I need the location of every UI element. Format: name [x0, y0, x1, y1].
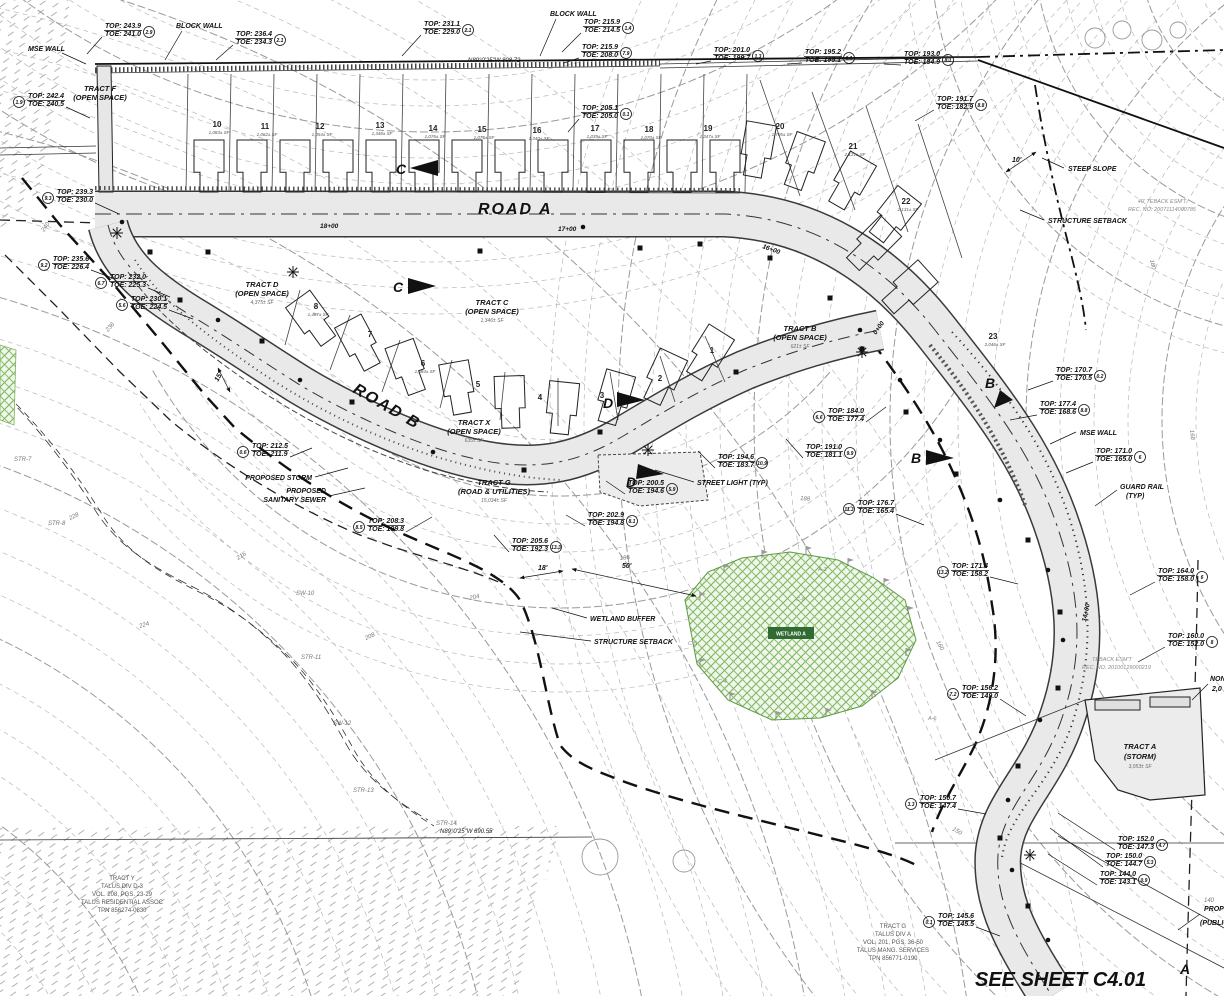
drawing-text: TOE: 214.5: [584, 27, 620, 34]
catch-basin-symbol: [148, 250, 153, 255]
stream-label: STR-8: [48, 521, 66, 527]
wall-label: TOP: 160.0TOE: 152.08: [1138, 633, 1218, 662]
drawing-line: 15': [214, 371, 225, 383]
drawing-text: 0.1: [846, 56, 853, 62]
drawing-line: [696, 61, 711, 64]
ne-corner-boundary: [978, 50, 1224, 57]
stream-line: [8, 398, 428, 820]
drawing-text: 13.3: [551, 545, 561, 551]
drawing-line: [884, 64, 901, 65]
lot-area: 1,487± SF: [308, 312, 329, 317]
catch-basin-symbol: [904, 410, 909, 415]
building-footprint: [538, 140, 568, 192]
street-light-symbol: [294, 273, 297, 276]
drawing-text: TOP: 242.4: [28, 93, 64, 100]
wetland-flag-label: C-5: [688, 641, 698, 647]
lot-area: 1,705± SF: [772, 132, 793, 137]
wall-label: TOP: 191.7TOE: 182.98.8: [915, 96, 987, 121]
adjacent-tract-west-5: TPN 856274-0830: [97, 908, 147, 914]
tract-g-sub: (ROAD & UTILITIES): [458, 487, 531, 496]
drawing-line: [1130, 582, 1155, 595]
lot-number: 12: [316, 122, 325, 131]
drawing-text: TOE: 241.0: [105, 31, 141, 38]
wall-label: TOP: 243.9TOE: 241.02.9: [87, 23, 155, 54]
drawing-text: 1.4: [625, 26, 632, 32]
wall-label: TOP: 231.1TOE: 229.02.1: [402, 21, 474, 56]
building-outline: [194, 140, 224, 192]
lot-number: 3: [600, 391, 605, 400]
lot-line: [444, 74, 446, 192]
lot-area: 2,131± SF: [897, 207, 919, 212]
drawing-text: TOE: 184.9: [904, 59, 940, 66]
tract-d-area: 4,375± SF: [250, 300, 274, 306]
wall-label: TOP: 150.7TOE: 147.43.3: [906, 795, 987, 814]
contour-label: 140: [1204, 898, 1215, 904]
wall-label: TOP: 205.6TOE: 192.313.3: [494, 535, 562, 553]
street-light-symbol: [115, 231, 119, 235]
stream-label: STR-13: [353, 788, 374, 794]
section-b-arrow: [926, 450, 954, 465]
wall-label: TOP: 194.6TOE: 183.710.9: [698, 451, 768, 469]
tract-a-name: TRACT A: [1124, 742, 1157, 751]
contour-line: [0, 0, 1122, 132]
building-footprint: [452, 140, 482, 192]
drawing-text: 2.1: [464, 28, 472, 34]
building-footprint: [494, 375, 526, 428]
drawing-text: TOP: 170.7: [1056, 367, 1093, 374]
manhole-symbol: [581, 225, 586, 230]
contour-label: 228: [67, 512, 80, 522]
drawing-line: [990, 577, 1018, 584]
tract-g-area: 15,034± SF: [481, 498, 508, 504]
drawing-text: TOE: 205.0: [582, 113, 618, 120]
building-outline: [495, 140, 525, 192]
leader: [62, 53, 86, 64]
tract-b-area: 621± SF: [791, 344, 811, 350]
drawing-line: [216, 45, 233, 60]
building-footprint: [286, 290, 341, 350]
lot-number: 13: [376, 121, 385, 130]
stream-label: STR-7: [14, 457, 32, 463]
leader: [1020, 210, 1044, 220]
esmt-50-label-2: REC. NO. 20100129000219: [1082, 665, 1151, 671]
building-footprint: [710, 140, 740, 192]
catch-basin-symbol: [638, 246, 643, 251]
street-light-symbol: [649, 446, 652, 449]
bearing-north: N89°0'25"W 808.72: [468, 58, 521, 64]
adjacent-tract-west-2: TALUS DIV D-3: [101, 884, 144, 890]
road-a-name: ROAD A: [478, 201, 553, 218]
bearing-south: N89°0'25"W 690.55: [440, 829, 493, 835]
contour-label: 160: [934, 640, 945, 652]
drawing-text: TOE: 194.8: [588, 520, 624, 527]
catch-basin-symbol: [1026, 904, 1031, 909]
wall-label: TOP: 195.2TOE: 195.10.1: [787, 49, 855, 64]
guard-rail-label-2: (TYP): [1126, 493, 1145, 500]
contour-line: [924, 0, 1224, 996]
drawing-line: 208: [363, 632, 376, 642]
contour-line: [1196, 56, 1224, 784]
street-light-symbol: [1028, 853, 1032, 857]
wall-label: TOP: 212.5TOE: 211.90.6: [238, 443, 313, 458]
wall-label: TOP: 201.0TOE: 199.71.3: [696, 47, 764, 64]
drawing-text: TOE: 147.3: [1118, 844, 1154, 851]
leader: [165, 31, 182, 60]
wall-label: TOP: 208.3TOE: 199.88.5: [354, 517, 433, 533]
drawing-text: TOP: 194.6: [718, 454, 754, 461]
lot-line: [573, 74, 575, 192]
drawing-text: TOE: 224.5: [131, 304, 167, 311]
proposed-label-right: PROPOSED: [1204, 906, 1224, 913]
drawing-text: 10.9: [757, 461, 767, 467]
building-outline: [323, 140, 353, 192]
lot-area: 1,076± SF: [425, 134, 446, 139]
lot-number: 11: [261, 122, 270, 131]
tract-a-sub: (STORM): [1124, 752, 1156, 761]
lot-number: 14: [429, 124, 438, 133]
catch-basin-symbol: [350, 400, 355, 405]
stream-label: STR-14: [436, 821, 457, 827]
catch-basin-symbol: [998, 836, 1003, 841]
lot-area: 1,347± SF: [700, 134, 721, 139]
drawing-text: TOE: 230.0: [57, 197, 93, 204]
street-light-symbol: [294, 268, 297, 271]
building-footprint: [544, 381, 579, 436]
drawing-text: 9.9: [847, 451, 854, 457]
drawing-line: [866, 407, 886, 422]
drawing-line: [562, 33, 581, 52]
wall-label: TOP: 171.4TOE: 158.213.2: [938, 563, 1019, 584]
building-outline: [286, 290, 341, 350]
drawing-text: TOE: 208.0: [582, 52, 618, 59]
contour-label: 180: [1148, 259, 1156, 271]
wall-label: TOP: 184.0TOE: 177.46.6: [814, 407, 887, 423]
street-light-symbol: [1026, 851, 1029, 854]
drawing-text: TOP: 212.5: [252, 443, 288, 450]
dim-18-arrow: [520, 571, 563, 578]
drawing-text: 2.1: [276, 38, 284, 44]
drawing-text: 0.6: [240, 450, 247, 456]
drawing-text: 8.8: [978, 103, 985, 109]
proposed-storm-label: PROPOSED STORM: [245, 475, 312, 482]
esmt-50-label-1: TEBACK ESM'T: [1092, 657, 1133, 663]
wetland-flag-label: C-8: [796, 597, 806, 603]
drawing-text: 6.7: [98, 281, 105, 287]
station-18: 18+00: [320, 223, 339, 230]
dim-18-label: 18': [538, 565, 548, 572]
drawing-text: TOE: 170.5: [1056, 375, 1092, 382]
stream-label: STR-11: [301, 655, 321, 661]
contour-label: 208: [363, 632, 376, 642]
lot-number: 19: [704, 124, 713, 133]
drawing-text: 5.9: [669, 487, 676, 493]
building-outline: [544, 381, 579, 436]
lot-line: [760, 80, 800, 196]
drawing-text: TOP: 208.3: [368, 518, 404, 525]
drawing-line: 180: [1148, 259, 1156, 271]
wetland-patch-west: [0, 345, 16, 425]
lot-area: 2,046± SF: [984, 342, 1006, 347]
drawing-text: 6: [1139, 455, 1142, 461]
manhole-symbol: [858, 328, 863, 333]
lot-number: 22: [902, 197, 911, 206]
building-footprint: [280, 140, 310, 192]
drawing-text: TOE: 143.1: [1100, 879, 1136, 886]
manhole-symbol: [1006, 798, 1011, 803]
manhole-symbol: [120, 220, 125, 225]
contour-label: 188: [800, 496, 811, 503]
drawing-text: TOE: 168.6: [1040, 409, 1076, 416]
street-light-symbol: [1031, 851, 1034, 854]
lot-line: [745, 74, 747, 192]
drawing-line: [66, 107, 90, 118]
drawing-line: [896, 514, 924, 525]
drawing-text: TOE: 183.7: [718, 462, 755, 469]
drawing-text: TOP: 156.2: [962, 685, 998, 692]
drawing-text: 13.2: [938, 570, 948, 576]
drawing-line: [406, 517, 432, 532]
drawing-text: 5.3: [1147, 860, 1154, 866]
manhole-symbol: [938, 438, 943, 443]
detail-circle: [1142, 30, 1162, 50]
drawing-text: TOP: 171.0: [1096, 448, 1132, 455]
contour-line: [1164, 0, 1224, 106]
lot-number: 10: [213, 120, 222, 129]
public-label: (PUBLIC): [1200, 920, 1224, 927]
drawing-text: 8.5: [356, 525, 363, 531]
drawing-text: TOP: 191.7: [937, 96, 974, 103]
wetland-flag-label: A-6: [927, 716, 938, 722]
drawing-text: TOE: 152.0: [1168, 641, 1204, 648]
structure-setback-line-ne: [1035, 85, 1086, 330]
catch-basin-symbol: [698, 242, 703, 247]
lot-line: [500, 372, 505, 420]
drawing-text: TOE: 195.1: [805, 57, 841, 64]
section-c-arrow: [408, 278, 436, 294]
drawing-line: 160: [934, 640, 945, 652]
drawing-text: TOP: 164.0: [1158, 568, 1194, 575]
lot-area: 1,062± SF: [257, 132, 278, 137]
street-light-symbol: [1026, 856, 1029, 859]
talus-hatch-area: [0, 826, 560, 996]
building-footprint: [667, 140, 697, 192]
drawing-text: TOE: 211.9: [252, 451, 288, 458]
drawing-text: TOP: 177.4: [1040, 401, 1076, 408]
building-footprint: [335, 314, 386, 374]
lot-area: 1,075± SF: [474, 135, 495, 140]
catch-basin-symbol: [1056, 686, 1061, 691]
wall-label: TOP: 205.1TOE: 205.00.1: [568, 105, 632, 132]
drawing-line: [290, 448, 312, 457]
contour-line: [1138, 0, 1224, 132]
lot-number: 16: [533, 126, 542, 135]
guard-rail-label-1: GUARD RAIL: [1120, 484, 1164, 491]
drawing-line: [958, 809, 986, 814]
catch-basin-symbol: [598, 430, 603, 435]
drawing-text: TOE: 194.6: [628, 488, 664, 495]
drawing-line: [1028, 381, 1053, 390]
drawing-text: TOP: 150.7: [920, 795, 957, 802]
station-17: 17+00: [558, 226, 577, 233]
drawing-text: 1.3: [755, 54, 762, 60]
drawing-line: [1050, 828, 1103, 867]
drawing-text: 6: [1201, 575, 1204, 581]
drawing-text: TOP: 205.6: [512, 538, 548, 545]
wall-label: TOP: 171.0TOE: 165.06: [1066, 448, 1146, 473]
drawing-text: TOE: 226.4: [53, 264, 89, 271]
wetland-area: WETLAND A: [685, 546, 916, 720]
dim-15-label: 15': [214, 371, 225, 383]
drawing-text: TOE: 199.7: [714, 55, 751, 62]
drawing-line: [1138, 647, 1165, 662]
building-outline: [779, 131, 826, 192]
adjacent-tract-west-4: TALUS RESIDENTIAL ASSOC: [81, 900, 164, 906]
block-wall-label: BLOCK WALL: [176, 23, 223, 30]
drawing-text: TOP: 195.2: [805, 49, 841, 56]
lot-area: 1,083± SF: [209, 130, 230, 135]
esmt-40-label-2: REC. NO. 20071114000785: [1128, 207, 1197, 213]
manhole-symbol: [1046, 568, 1051, 573]
wall-label: TOP: 236.4TOE: 234.32.1: [216, 31, 286, 60]
adjacent-tract-south-2: TALUS DIV A: [875, 932, 911, 938]
drawing-line: 188: [800, 496, 811, 503]
building-outline: [710, 140, 740, 192]
lot-number: 6: [421, 359, 426, 368]
tract-b-sub: (OPEN SPACE): [773, 333, 827, 342]
building-footprint: [194, 140, 224, 192]
hammerhead-pad: [598, 452, 708, 506]
drawing-text: TOP: 184.0: [828, 408, 864, 415]
lot-number: 20: [776, 122, 785, 131]
drawing-text: TOP: 215.9: [582, 44, 618, 51]
lot-area: 1,054± SF: [312, 132, 333, 137]
wetland-label: WETLAND A: [776, 632, 806, 638]
storm-vault-lid: [1150, 697, 1190, 707]
leader: [520, 632, 591, 641]
catch-basin-symbol: [1016, 764, 1021, 769]
drawing-line: 168: [1188, 430, 1195, 441]
tract-x-name: TRACT X: [458, 418, 491, 427]
leader: [1178, 914, 1200, 930]
adjacent-tract-west-3: VOL. 208, PGS. 23-29: [92, 892, 153, 898]
drawing-text: 7.2: [950, 692, 957, 698]
catch-basin-symbol: [478, 249, 483, 254]
leader: [1095, 490, 1117, 506]
drawing-text: 0.9: [1141, 878, 1148, 884]
drawing-line: [87, 37, 102, 54]
drawing-text: TOP: 239.3: [57, 189, 93, 196]
tract-f-sub: (OPEN SPACE): [73, 93, 127, 102]
drawing-text: 4.7: [1158, 843, 1166, 849]
wall-label: TOP: 191.0TOE: 181.19.9: [786, 439, 856, 459]
drawing-text: TOE: 225.3: [110, 282, 146, 289]
wall-label: TOP: 156.2TOE: 149.07.2: [948, 685, 1027, 716]
drawing-text: TOP: 201.0: [714, 47, 750, 54]
drawing-text: TOE: 181.1: [806, 452, 842, 459]
contour-line: [982, 0, 1224, 288]
lot-area: 1,070± SF: [641, 135, 662, 140]
catch-basin-symbol: [522, 468, 527, 473]
section-c-arrow: [410, 160, 438, 176]
drawing-text: TOP: 230.1: [131, 296, 167, 303]
lot-line: [358, 74, 360, 192]
dim-10-label: 10': [1012, 157, 1022, 164]
drawing-text: TOE: 240.5: [28, 101, 64, 108]
drawing-text: 5.6: [119, 303, 126, 309]
building-outline: [667, 140, 697, 192]
drawing-text: TOP: 232.0: [110, 274, 146, 281]
manhole-symbol: [216, 318, 221, 323]
tract-c-sub: (OPEN SPACE): [465, 307, 519, 316]
drawing-text: TOP: 160.0: [1168, 633, 1204, 640]
drawing-line: [787, 63, 802, 64]
drawing-text: TOE: 199.8: [368, 526, 404, 533]
building-footprint: [366, 140, 396, 192]
offsite-dash-west: [0, 220, 100, 223]
wetland-flag: [806, 546, 812, 550]
drawing-text: 0.1: [623, 112, 630, 118]
tract-d-sub: (OPEN SPACE): [235, 289, 289, 298]
section-c-label: C: [393, 279, 404, 295]
lot-number: 2: [658, 374, 663, 383]
street-light-symbol: [860, 350, 864, 354]
building-footprint: [495, 140, 525, 192]
drawing-text: TOP: 200.5: [628, 480, 664, 487]
section-a-label: A: [1179, 961, 1190, 977]
drawing-text: TOP: 236.4: [236, 31, 272, 38]
detail-circle: [673, 850, 695, 872]
drawing-text: TOP: 176.7: [858, 500, 895, 507]
wall-label: TOP: 202.9TOE: 194.88.1: [566, 512, 638, 527]
drawing-text: TOP: 152.0: [1118, 836, 1154, 843]
leader: [540, 19, 556, 56]
tract-a-area: 3,053± SF: [1128, 764, 1152, 770]
street-light-symbol: [289, 273, 292, 276]
detail-circle: [1170, 22, 1186, 38]
detail-circle: [582, 839, 618, 875]
lot-number: 23: [989, 332, 998, 341]
street-light-symbol: [289, 268, 292, 271]
drawing-text: TOP: 215.9: [584, 19, 620, 26]
adjacent-tract-west-1: TRACT Y: [109, 876, 134, 882]
manhole-symbol: [1046, 938, 1051, 943]
building-outline: [494, 375, 526, 428]
drawing-text: 9.2: [41, 263, 48, 269]
lot-line: [918, 124, 962, 258]
building-outline: [439, 360, 478, 416]
drawing-text: TOP: 144.0: [1100, 871, 1136, 878]
lot-area: 2,121± SF: [844, 152, 866, 157]
drawing-text: 8.1: [629, 519, 636, 525]
drawing-text: TOE: 149.0: [962, 693, 998, 700]
section-d-label: D: [603, 395, 613, 411]
wetland-flag-label: C-4: [718, 679, 727, 685]
building-outline: [452, 140, 482, 192]
manhole-symbol: [1010, 868, 1015, 873]
wetland-buffer-label: WETLAND BUFFER: [590, 616, 655, 623]
block-wall-label: BLOCK WALL: [550, 11, 597, 18]
catch-basin-symbol: [1026, 538, 1031, 543]
drawing-text: TOE: 158.2: [952, 571, 988, 578]
lot-area: 1,484± SF: [415, 369, 436, 374]
drawing-text: 8.1: [945, 58, 952, 64]
non-label-1: NON: [1210, 676, 1224, 683]
drawing-text: TOE: 182.9: [937, 104, 973, 111]
drawing-text: 7.9: [623, 51, 630, 57]
adjacent-tract-south-4: TALUS MANG. SERVICES: [857, 948, 929, 954]
drawing-text: TOE: 165.4: [858, 508, 894, 515]
building-outline: [366, 140, 396, 192]
